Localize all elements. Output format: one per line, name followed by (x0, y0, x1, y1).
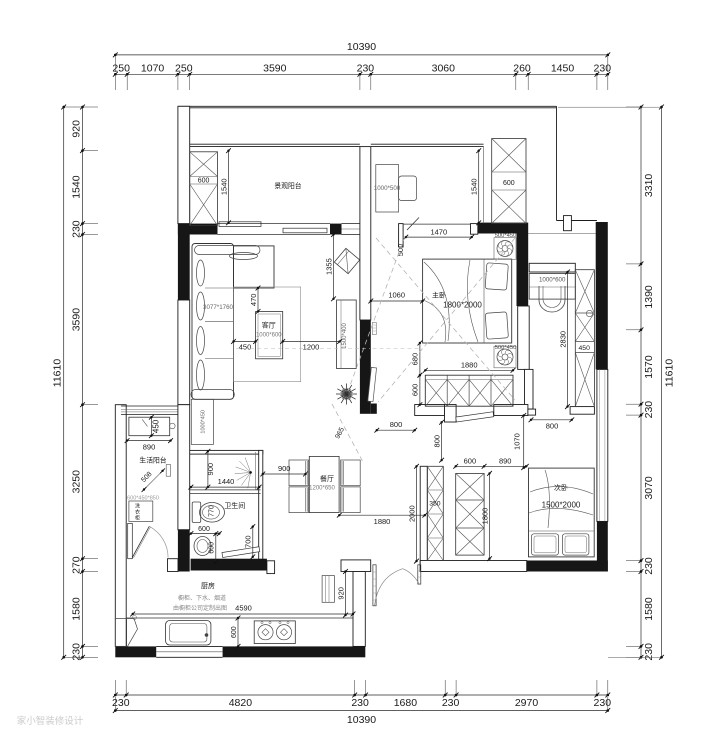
svg-text:260: 260 (513, 62, 531, 74)
svg-text:230: 230 (112, 697, 130, 709)
svg-text:1570: 1570 (643, 355, 655, 379)
svg-text:3070: 3070 (643, 476, 655, 500)
svg-text:10390: 10390 (347, 714, 376, 726)
svg-text:920: 920 (336, 587, 345, 600)
svg-text:500*450: 500*450 (495, 345, 517, 351)
svg-text:680: 680 (411, 353, 420, 366)
svg-text:景观阳台: 景观阳台 (274, 181, 301, 190)
svg-text:客厅: 客厅 (262, 321, 276, 330)
svg-text:600: 600 (411, 384, 420, 397)
svg-text:由橱柜公司定制出图: 由橱柜公司定制出图 (173, 604, 227, 612)
svg-text:800: 800 (390, 420, 403, 429)
svg-text:770: 770 (209, 505, 216, 517)
svg-text:900: 900 (206, 463, 215, 476)
svg-text:500: 500 (396, 244, 405, 257)
svg-text:450: 450 (239, 343, 252, 352)
svg-text:厨房: 厨房 (201, 581, 215, 590)
svg-text:1540: 1540 (219, 178, 228, 195)
svg-text:890: 890 (499, 456, 512, 465)
svg-text:230: 230 (594, 62, 612, 74)
svg-text:230: 230 (351, 697, 369, 709)
svg-text:柜: 柜 (135, 515, 140, 522)
svg-text:衣: 衣 (135, 509, 140, 516)
svg-text:450: 450 (152, 419, 161, 433)
svg-text:1070: 1070 (513, 433, 522, 450)
svg-text:11610: 11610 (663, 359, 675, 388)
svg-text:2970: 2970 (515, 697, 539, 709)
svg-text:600: 600 (209, 542, 216, 554)
svg-text:920: 920 (70, 120, 82, 138)
svg-text:600: 600 (503, 180, 515, 187)
svg-text:230: 230 (643, 643, 655, 661)
svg-text:3310: 3310 (643, 174, 655, 198)
svg-text:450: 450 (579, 345, 591, 352)
svg-text:1580: 1580 (643, 597, 655, 621)
svg-text:1000*600: 1000*600 (539, 277, 566, 284)
svg-text:230: 230 (643, 557, 655, 575)
svg-text:230: 230 (357, 62, 375, 74)
svg-text:1680: 1680 (394, 697, 418, 709)
svg-text:1000*500: 1000*500 (374, 185, 401, 192)
svg-text:1880: 1880 (461, 360, 478, 369)
svg-text:洗: 洗 (135, 503, 140, 510)
svg-text:230: 230 (594, 697, 612, 709)
svg-text:230: 230 (643, 401, 655, 419)
svg-text:2830: 2830 (558, 331, 567, 348)
svg-text:1070: 1070 (141, 62, 165, 74)
svg-text:470: 470 (249, 294, 258, 307)
svg-text:230: 230 (442, 697, 460, 709)
svg-text:700: 700 (244, 535, 253, 548)
svg-text:1440: 1440 (218, 477, 235, 486)
svg-text:3077*1760: 3077*1760 (203, 304, 233, 311)
svg-text:900: 900 (278, 464, 291, 473)
svg-text:餐厅: 餐厅 (320, 474, 334, 483)
svg-text:生活阳台: 生活阳台 (139, 456, 166, 465)
svg-text:4820: 4820 (229, 697, 253, 709)
svg-text:1390: 1390 (643, 285, 655, 309)
svg-text:4590: 4590 (235, 604, 252, 613)
svg-text:1060: 1060 (388, 291, 405, 300)
svg-text:主卧: 主卧 (432, 291, 446, 300)
svg-text:1470: 1470 (430, 227, 447, 236)
svg-text:1500*2000: 1500*2000 (542, 501, 581, 510)
svg-text:3590: 3590 (263, 62, 287, 74)
svg-text:600: 600 (198, 526, 210, 533)
svg-text:230: 230 (70, 220, 82, 238)
svg-text:卫生间: 卫生间 (224, 501, 245, 510)
svg-text:3060: 3060 (432, 62, 456, 74)
svg-text:800: 800 (432, 435, 441, 448)
svg-text:250: 250 (175, 62, 193, 74)
svg-text:1500*400: 1500*400 (342, 322, 348, 348)
svg-text:800: 800 (546, 422, 559, 431)
svg-text:3250: 3250 (70, 470, 82, 494)
svg-text:270: 270 (70, 556, 82, 574)
svg-text:600: 600 (231, 626, 238, 638)
svg-text:橱柜、下水、烟道: 橱柜、下水、烟道 (178, 594, 226, 602)
svg-text:11610: 11610 (52, 359, 64, 388)
svg-text:600*450*850: 600*450*850 (127, 496, 159, 502)
svg-text:1540: 1540 (470, 178, 479, 195)
svg-text:2000: 2000 (407, 505, 416, 522)
svg-text:600: 600 (464, 456, 477, 465)
svg-text:1355: 1355 (324, 258, 333, 275)
svg-text:1000*600: 1000*600 (256, 333, 282, 339)
svg-text:次卧: 次卧 (554, 483, 568, 492)
svg-text:350: 350 (429, 501, 441, 508)
svg-text:1000*450: 1000*450 (201, 410, 207, 434)
svg-text:1200*650: 1200*650 (309, 486, 335, 492)
svg-text:890: 890 (143, 443, 156, 452)
svg-text:1800: 1800 (480, 508, 489, 525)
svg-text:1200: 1200 (303, 343, 320, 352)
svg-text:1580: 1580 (70, 597, 82, 621)
svg-text:3590: 3590 (70, 308, 82, 332)
svg-text:1450: 1450 (551, 62, 575, 74)
svg-text:1800*2000: 1800*2000 (443, 301, 482, 310)
svg-text:230: 230 (70, 643, 82, 661)
svg-text:1540: 1540 (70, 175, 82, 199)
svg-text:500*450: 500*450 (495, 233, 517, 239)
svg-text:1880: 1880 (374, 517, 391, 526)
svg-text:家小智装修设计: 家小智装修设计 (17, 715, 84, 727)
svg-text:600: 600 (198, 178, 210, 185)
svg-text:10390: 10390 (347, 41, 376, 53)
